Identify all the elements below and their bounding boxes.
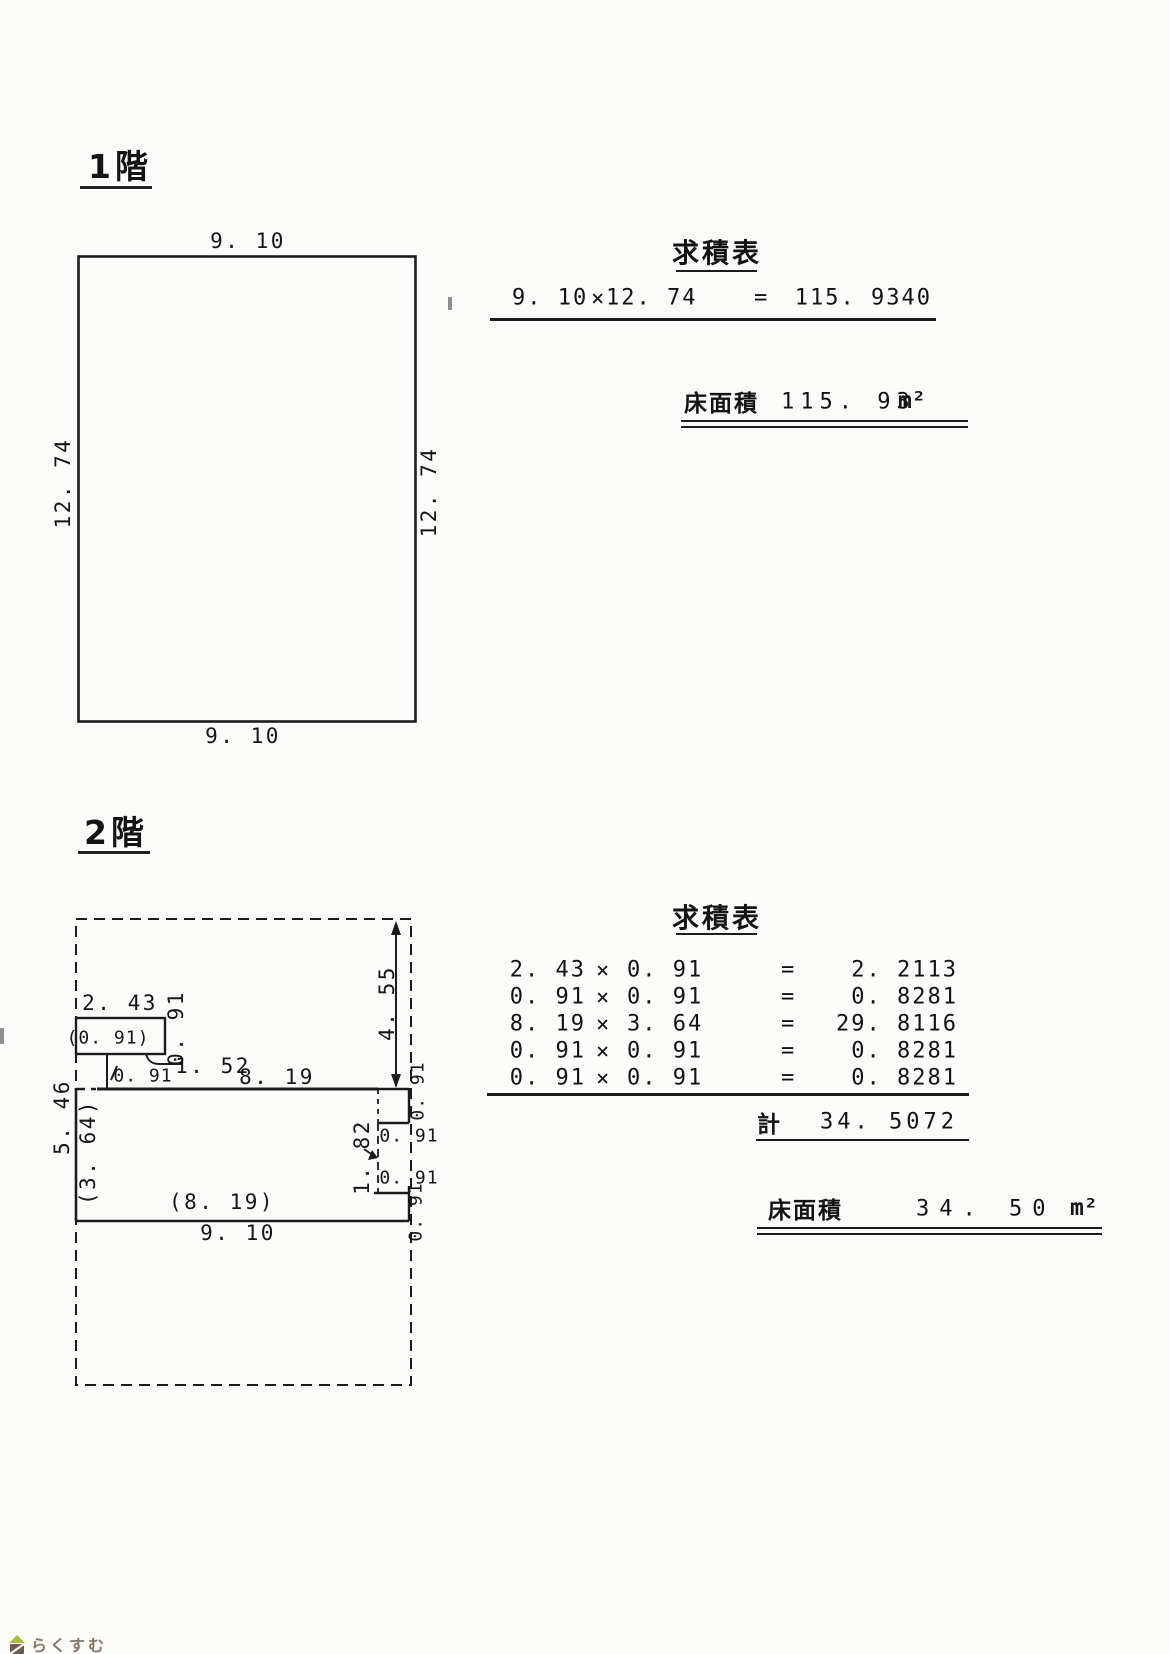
equals-sign: = [781, 1066, 796, 1091]
multiply-sign: × [596, 1067, 611, 1092]
operand-a: 0. 91 [506, 1039, 586, 1064]
floor1-title-underline [676, 270, 757, 272]
dim-0-91-paren: (0. 91) [67, 1028, 150, 1049]
row-result: 2. 2113 [806, 958, 958, 983]
dim-0-91-right-b: 0. 91 [406, 1182, 427, 1241]
floor1-area-underline-1 [681, 420, 968, 422]
brand-logo: らくすむ [8, 1632, 107, 1654]
floor1-floor-area-unit: m² [898, 388, 926, 414]
plan-linework [0, 0, 1170, 1654]
floor2-dim-arrow-up [391, 921, 401, 935]
floor1-heading-underline [80, 186, 152, 189]
dim-9-10: 9. 10 [200, 1221, 276, 1245]
operand-b: 12. 74 [606, 286, 697, 311]
floor1-dim-bottom: 9. 10 [205, 724, 281, 748]
floor1-dim-left: 12. 74 [51, 438, 75, 529]
operand-b: 0. 91 [627, 958, 703, 983]
equals-sign: = [781, 1012, 796, 1037]
row-result: 0. 8281 [806, 1039, 958, 1064]
row-result: 29. 8116 [806, 1012, 958, 1037]
equals-sign: = [781, 958, 796, 983]
dim-0-91: 0. 91 [113, 1066, 172, 1087]
operand-b: 3. 64 [627, 1012, 703, 1037]
dim-0-91-row1: 0. 91 [379, 1126, 438, 1147]
house-icon [8, 1633, 26, 1654]
scan-speck [0, 1028, 4, 1044]
multiply-sign: × [596, 1013, 611, 1038]
dim-1-82: 1. 82 [350, 1119, 374, 1195]
scan-speck [448, 297, 452, 310]
floor2-total-value: 34. 5072 [806, 1110, 958, 1135]
scanned-area-calculation-sheet: 1階 9. 10 12. 74 12. 74 9. 10 求積表 9. 10 ×… [0, 0, 1170, 1654]
floor1-table-title: 求積表 [672, 232, 762, 271]
floor2-area-underline-1 [757, 1227, 1102, 1229]
dim-8-19: 8. 19 [239, 1065, 315, 1089]
multiply-sign: × [591, 287, 606, 312]
multiply-sign: × [596, 959, 611, 984]
operand-a: 2. 43 [506, 958, 586, 983]
dim-8-19-paren: (8. 19) [169, 1190, 275, 1214]
row-result: 115. 9340 [780, 286, 932, 311]
floor1-outline [79, 257, 416, 722]
dim-0-91-right-a: 0. 91 [408, 1061, 429, 1120]
floor2-heading-underline [78, 851, 150, 854]
operand-b: 0. 91 [627, 1039, 703, 1064]
floor2-total-label: 計 [757, 1105, 782, 1139]
equals-sign: = [754, 286, 769, 311]
row-result: 0. 8281 [806, 1066, 958, 1091]
brand-logo-text: らくすむ [31, 1632, 107, 1654]
operand-b: 0. 91 [627, 1066, 703, 1091]
floor1-table-rule [490, 318, 936, 321]
floor2-heading: 2階 [84, 806, 148, 854]
operand-a: 9. 10 [512, 286, 588, 311]
dim-3-64-paren: (3. 64) [76, 1099, 100, 1205]
operand-a: 0. 91 [506, 985, 586, 1010]
equals-sign: = [781, 985, 796, 1010]
floor1-dim-top: 9. 10 [210, 229, 286, 253]
dim-5-46: 5. 46 [50, 1079, 74, 1155]
operand-b: 0. 91 [627, 985, 703, 1010]
floor2-floor-area-label: 床面積 [768, 1191, 843, 1225]
operand-a: 0. 91 [506, 1066, 586, 1091]
dim-4-55: 4. 55 [375, 965, 399, 1041]
multiply-sign: × [596, 1040, 611, 1065]
floor2-title-underline [676, 933, 757, 935]
floor2-floor-area-value: 34. 50 [916, 1197, 1055, 1222]
multiply-sign: × [596, 986, 611, 1011]
row-result: 0. 8281 [806, 985, 958, 1010]
floor2-area-underline-2 [757, 1233, 1102, 1235]
floor2-total-underline [756, 1139, 969, 1141]
equals-sign: = [781, 1039, 796, 1064]
floor2-dim-arrow-down [391, 1074, 401, 1088]
floor1-area-underline-2 [681, 426, 968, 428]
floor2-table-title: 求積表 [672, 897, 762, 936]
operand-a: 8. 19 [506, 1012, 586, 1037]
floor2-table-rule [487, 1093, 969, 1096]
floor2-floor-area-unit: m² [1070, 1195, 1098, 1221]
dim-2-43: 2. 43 [82, 991, 158, 1015]
floor1-floor-area-value: 115. 93 [781, 390, 916, 415]
floor1-dim-right: 12. 74 [417, 447, 441, 538]
floor1-heading: 1階 [88, 140, 152, 188]
floor1-floor-area-label: 床面積 [684, 384, 759, 418]
